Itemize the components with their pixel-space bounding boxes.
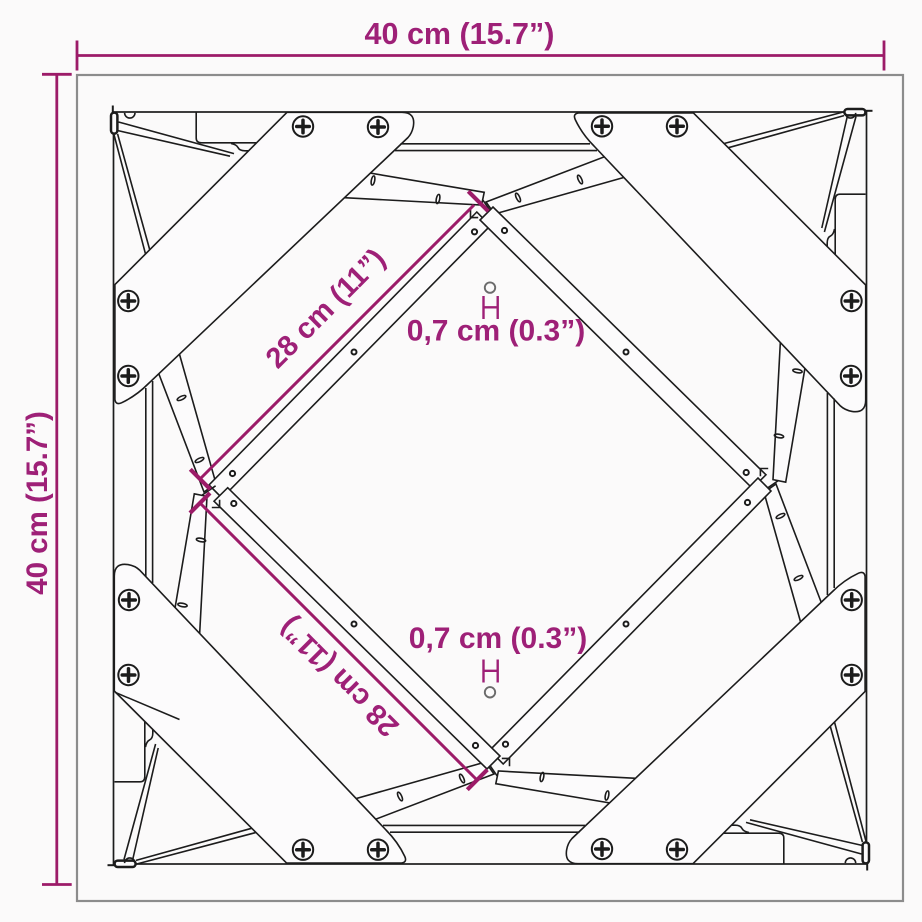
svg-text:40 cm (15.7”): 40 cm (15.7”)	[365, 17, 555, 51]
svg-text:0,7 cm (0.3”): 0,7 cm (0.3”)	[409, 622, 587, 655]
svg-text:40 cm (15.7”): 40 cm (15.7”)	[21, 411, 54, 595]
svg-text:0,7 cm (0.3”): 0,7 cm (0.3”)	[407, 315, 585, 348]
